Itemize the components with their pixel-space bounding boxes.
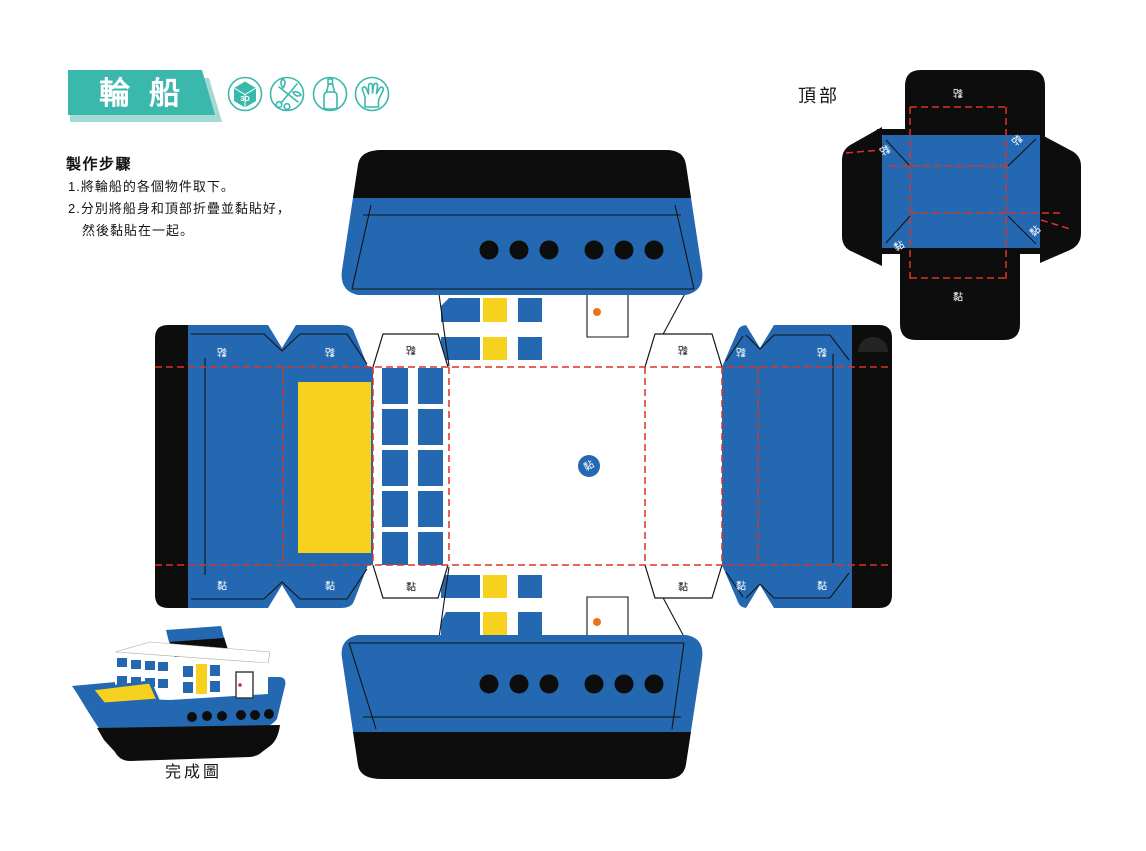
glue-tab-label: 黏 [678, 344, 688, 357]
completed-ship-figure: 完成圖 [72, 626, 285, 781]
glue-tab-label: 黏 [817, 580, 827, 593]
instruction-step-1: 1.將輪船的各個物件取下。 [68, 179, 235, 194]
3d-model-icon: 3D [229, 78, 262, 111]
scissors-icon [271, 78, 304, 111]
page-title: 輪船 [99, 76, 199, 111]
door-knob [593, 308, 601, 316]
top-piece-label: 頂部 [798, 86, 840, 106]
glue-tab-label: 黏 [678, 581, 688, 594]
deck-window-yellow [483, 575, 507, 598]
craft-sheet-canvas: 輪船 3D 製作步驟 1.將輪船的各個物件取下。 [0, 0, 1146, 851]
deck-window [518, 575, 542, 598]
box-flap-left [842, 127, 882, 266]
deck-window [518, 337, 542, 360]
glue-tab-label: 黏 [217, 346, 227, 359]
deck-window-yellow [483, 337, 507, 360]
hand-icon [356, 78, 389, 111]
box-flap-top [905, 70, 1045, 135]
glue-tab-label: 黏 [953, 291, 963, 304]
cabin-side-windows [382, 368, 443, 565]
glue-tab-label: 黏 [817, 346, 827, 359]
instructions-block: 製作步驟 1.將輪船的各個物件取下。 2.分別將船身和頂部折疊並黏貼好， 然後黏… [65, 155, 291, 238]
deck-window [518, 298, 542, 322]
completed-figure-caption: 完成圖 [165, 763, 222, 781]
hatch-panel [298, 382, 371, 553]
glue-tab-label: 黏 [406, 581, 416, 594]
top-hull-panel [330, 142, 720, 295]
hull-black-band [330, 732, 720, 788]
bottom-hull-panel [330, 635, 720, 788]
deck-window [518, 612, 542, 635]
tool-icons: 3D [229, 78, 389, 111]
glue-bottle-icon [314, 78, 347, 111]
deck-window-yellow [483, 298, 507, 322]
glue-tab-label: 黏 [736, 580, 746, 593]
instruction-step-2: 2.分別將船身和頂部折疊並黏貼好， [68, 201, 291, 216]
craft-sheet-page: 輪船 3D 製作步驟 1.將輪船的各個物件取下。 [0, 0, 1146, 851]
glue-tab-label: 黏 [217, 580, 227, 593]
cabin-door [586, 289, 629, 338]
glue-tab-label: 黏 [406, 344, 416, 357]
hull-black-band [330, 142, 720, 198]
middle-fold-strip: 黏 黏 黏 黏 黏 黏 黏 黏 黏 黏 黏 黏 黏 [155, 325, 892, 608]
glue-tab-label: 黏 [325, 580, 335, 593]
deck-window-yellow [483, 612, 507, 635]
instructions-heading: 製作步驟 [65, 155, 132, 173]
box-top-face [882, 135, 1040, 248]
door-knob [238, 683, 242, 687]
deck-window [441, 612, 480, 635]
3d-icon-text: 3D [240, 94, 250, 103]
box-flap-right [1040, 134, 1081, 263]
title-banner: 輪船 [68, 70, 222, 122]
glue-tab-label: 黏 [325, 346, 335, 359]
instruction-step-2-cont: 然後黏貼在一起。 [82, 223, 194, 238]
top-box-template: 頂部 黏 黏 黏 黏 黏 黏 [798, 70, 1081, 340]
door-knob [593, 618, 601, 626]
ship-hull-bottom [97, 725, 280, 761]
glue-tab-label: 黏 [953, 87, 963, 100]
glue-tab-label: 黏 [736, 346, 746, 359]
deck-window [441, 298, 480, 322]
